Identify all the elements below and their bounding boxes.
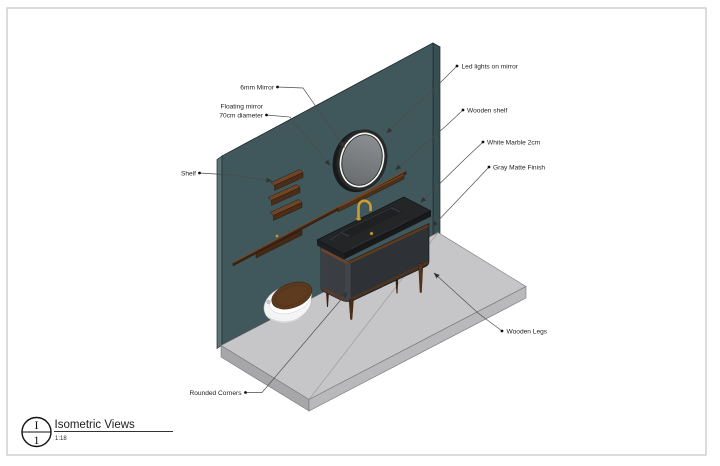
dot-gray-matte xyxy=(488,166,491,169)
dot-wooden-legs xyxy=(501,330,504,333)
dot-shelf xyxy=(198,172,201,175)
view-scale: 1:18 xyxy=(55,436,67,442)
leader-gray-matte xyxy=(433,167,490,227)
label-wooden-shelf: Wooden shelf xyxy=(467,108,507,115)
label-rounded-corners: Rounded Corners xyxy=(189,390,242,397)
label-floating-mirror-line1: Floating mirror xyxy=(220,104,263,111)
dot-wooden-shelf xyxy=(462,109,465,112)
cabinet-rounded-edge xyxy=(345,260,351,302)
label-floating-mirror-line2: 70cm diameter xyxy=(219,113,263,120)
sink-drain xyxy=(370,232,373,235)
title-block: I 1 Isometric Views 1:18 xyxy=(22,418,173,448)
view-number: 1 xyxy=(34,433,40,447)
label-6mm-mirror: 6mm Mirror xyxy=(240,85,275,92)
dot-floating-mirror xyxy=(265,114,268,117)
isometric-drawing-canvas: 6mm Mirror Floating mirror 70cm diameter… xyxy=(0,0,720,466)
wall-right-end-face xyxy=(433,43,440,235)
view-title: Isometric Views xyxy=(55,419,136,431)
wall-left-end-face xyxy=(217,156,222,349)
toilet-flush-button xyxy=(267,300,271,304)
dot-led-lights xyxy=(456,65,459,68)
label-wooden-legs: Wooden Legs xyxy=(507,329,548,336)
dot-rounded-corners xyxy=(244,391,247,394)
label-shelf: Shelf xyxy=(181,171,196,178)
drawing-page: 6mm Mirror Floating mirror 70cm diameter… xyxy=(0,0,720,466)
label-gray-matte: Gray Matte Finish xyxy=(493,165,545,172)
rail-brass-knob xyxy=(276,235,279,238)
dot-6mm-mirror xyxy=(276,86,279,89)
dot-white-marble xyxy=(482,141,485,144)
label-led-lights: Led lights on mirror xyxy=(462,64,519,71)
view-letter: I xyxy=(35,418,39,432)
label-white-marble: White Marble 2cm xyxy=(487,140,541,147)
